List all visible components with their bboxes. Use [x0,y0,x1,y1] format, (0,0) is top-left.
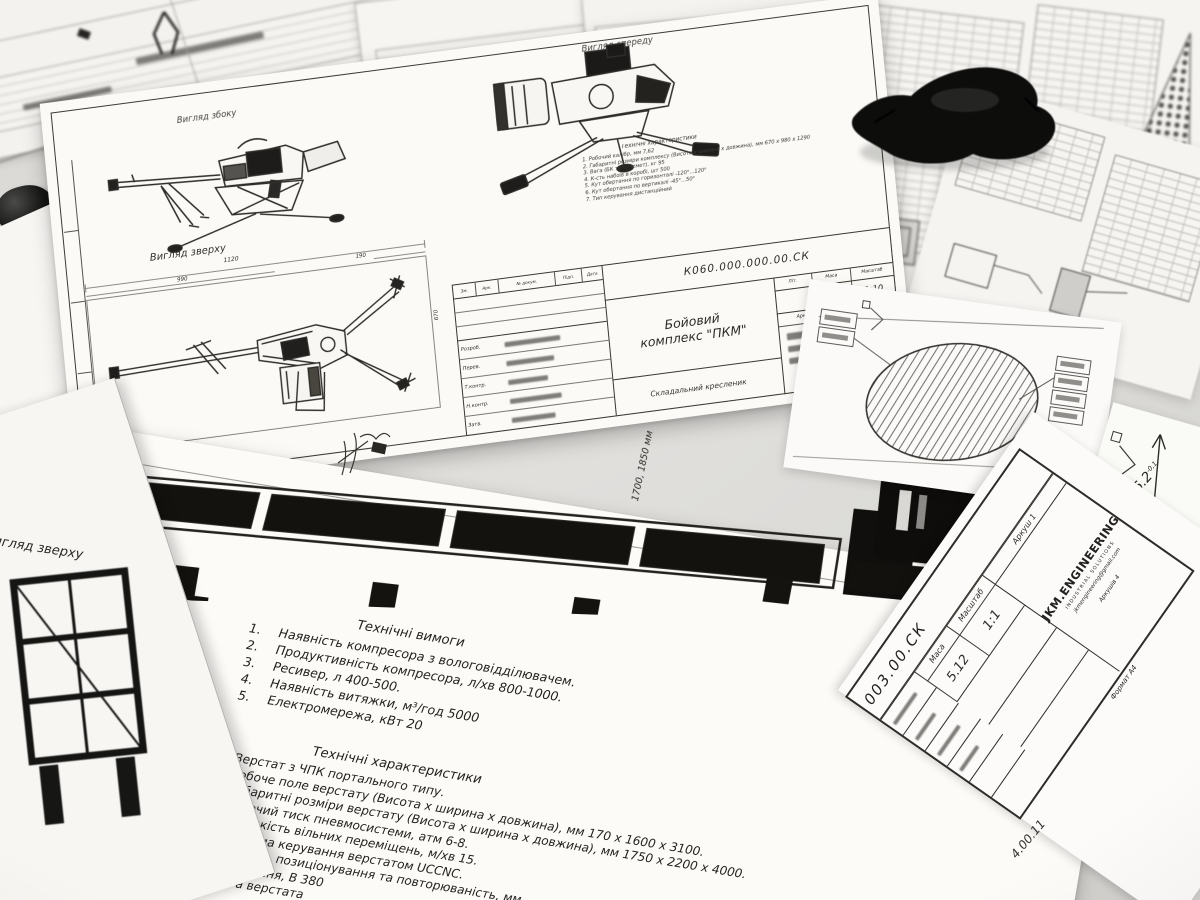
stamp-area: Зм. Арк. № докум. Підп. Дата Розроб. Пер… [453,266,617,435]
fork-mark [140,6,190,66]
stamp-row-label: Т.контр. [462,379,508,391]
black-object-on-papers [845,52,1065,182]
stamp-row-label: Розроб. [459,341,505,353]
stamp-row-label: Перев. [461,360,507,372]
stamp-row-label: Н.контр. [464,398,510,410]
item-number: 5. [233,686,252,705]
pencil-scribble-sketch [330,423,420,483]
photo-of-blueprints: Вигляд збоку Вигляд спереду [0,0,1200,900]
stamp-rows: Розроб. Перев. Т.контр. Н.контр. Затв. [458,322,616,435]
stamp-row-label: Затв. [466,417,512,429]
